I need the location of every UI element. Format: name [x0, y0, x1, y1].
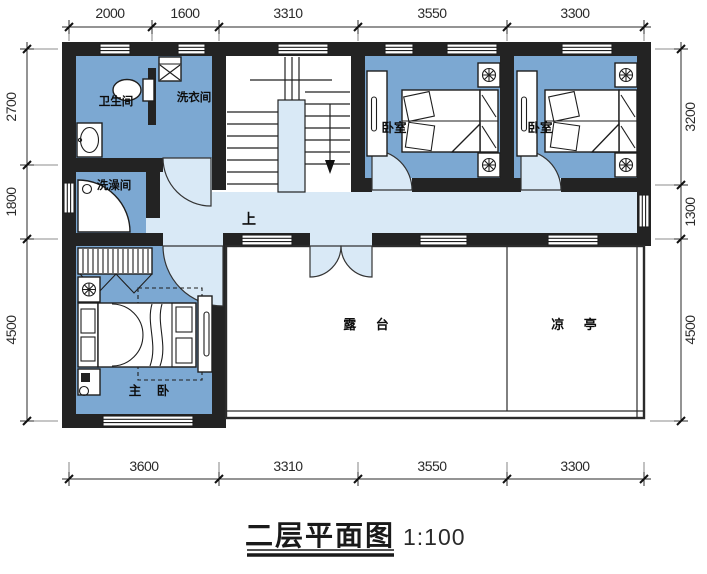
master-dresser	[198, 296, 212, 372]
terrace-door-left-leaf	[310, 246, 341, 277]
title-block: 二层平面图 1:100	[245, 520, 466, 555]
dim-top-4: 3550	[417, 5, 447, 21]
wall-bedrooms-south-c	[561, 178, 651, 192]
window-shower-left	[64, 183, 74, 213]
window-corridor-south-a	[242, 235, 292, 245]
shower-label: 洗澡间	[97, 178, 132, 192]
dim-top-5: 3300	[560, 5, 590, 21]
dim-right-1: 3200	[682, 102, 698, 132]
terrace-door-right-leaf	[341, 246, 372, 277]
dim-bottom-4: 3300	[560, 458, 590, 474]
washing-machine	[159, 57, 181, 81]
master-bed	[78, 303, 196, 367]
dim-bottom-3: 3550	[417, 458, 447, 474]
dim-bottom-1: 3600	[129, 458, 159, 474]
wall-stair-east	[351, 56, 365, 192]
dim-left-2: 1800	[3, 187, 19, 217]
bedroom2-nightstand-bottom	[615, 153, 637, 177]
dim-top-1: 2000	[95, 5, 125, 21]
corridor-main	[160, 192, 637, 233]
window-corridor-right	[639, 195, 649, 227]
terrace-label: 露 台	[343, 317, 397, 332]
bedroom1-wardrobe	[367, 71, 387, 156]
plan-scale: 1:100	[403, 524, 466, 550]
bedroom2-bed	[545, 90, 637, 152]
dimensions-bottom: 3600 3310 3550 3300	[62, 458, 651, 486]
wall-shower-east	[146, 165, 160, 218]
plan-title: 二层平面图	[245, 520, 395, 551]
bedroom2-label: 卧室	[527, 120, 553, 135]
dim-left-1: 2700	[3, 92, 19, 122]
bedroom1-bed	[402, 90, 498, 152]
dimensions-right: 3200 1300 4500	[650, 42, 698, 425]
dim-right-3: 4500	[682, 315, 698, 345]
bathroom-label: 卫生间	[99, 94, 134, 108]
window-laundry-top	[178, 44, 205, 54]
bedroom1-nightstand-top	[478, 63, 500, 87]
dimension-ticks-left	[20, 45, 58, 425]
dimension-ticks-top	[65, 20, 648, 41]
laundry-label: 洗衣间	[177, 90, 212, 104]
window-bedroom1-top-b	[447, 44, 497, 54]
pavilion-label: 凉 亭	[551, 317, 605, 332]
wall-corridor-south-a	[62, 233, 163, 246]
sink	[77, 123, 102, 157]
window-corridor-south-c	[548, 235, 598, 245]
terrace-door-gap	[310, 233, 372, 246]
master-nightstand-top	[78, 277, 100, 302]
master-bedroom-label: 主 卧	[129, 383, 175, 398]
dimensions-top: 2000 1600 3310 3550 3300	[62, 5, 651, 41]
terrace-boundary	[226, 246, 644, 418]
dim-top-2: 1600	[170, 5, 200, 21]
wall-bedroom-divider	[500, 56, 514, 192]
floor-plan-drawing: 卫生间 洗衣间 洗澡间 上 卧室 卧室 主 卧 露 台 凉 亭 2000 160…	[0, 0, 707, 574]
bedroom2-nightstand-top	[615, 63, 637, 87]
bedroom1-label: 卧室	[381, 120, 407, 135]
window-bedroom2-top	[562, 44, 612, 54]
window-bedroom1-top-a	[385, 44, 413, 54]
shower-doorway	[146, 218, 160, 233]
stair-void	[278, 100, 305, 192]
bedroom2-wardrobe	[517, 71, 537, 156]
wall-stair-west	[212, 56, 226, 190]
window-master-bottom	[103, 416, 193, 426]
dim-top-3: 3310	[273, 5, 303, 21]
dim-right-2: 1300	[682, 197, 698, 227]
dimensions-left: 2700 1800 4500	[3, 42, 58, 425]
master-door-gap	[163, 233, 223, 246]
stairs-up-label: 上	[242, 211, 256, 227]
wall-corridor-south-c	[372, 233, 651, 246]
floor-plan-page: 卫生间 洗衣间 洗澡间 上 卧室 卧室 主 卧 露 台 凉 亭 2000 160…	[0, 0, 707, 574]
window-bathroom-top	[100, 44, 130, 54]
window-corridor-south-b	[420, 235, 467, 245]
bedroom1-nightstand-bottom	[478, 153, 500, 177]
dim-left-3: 4500	[3, 315, 19, 345]
window-stair-top	[278, 44, 328, 54]
terrace-outline	[226, 246, 644, 418]
dimension-ticks-right	[650, 45, 688, 425]
master-nightstand-bottom	[78, 369, 100, 396]
dim-bottom-2: 3310	[273, 458, 303, 474]
